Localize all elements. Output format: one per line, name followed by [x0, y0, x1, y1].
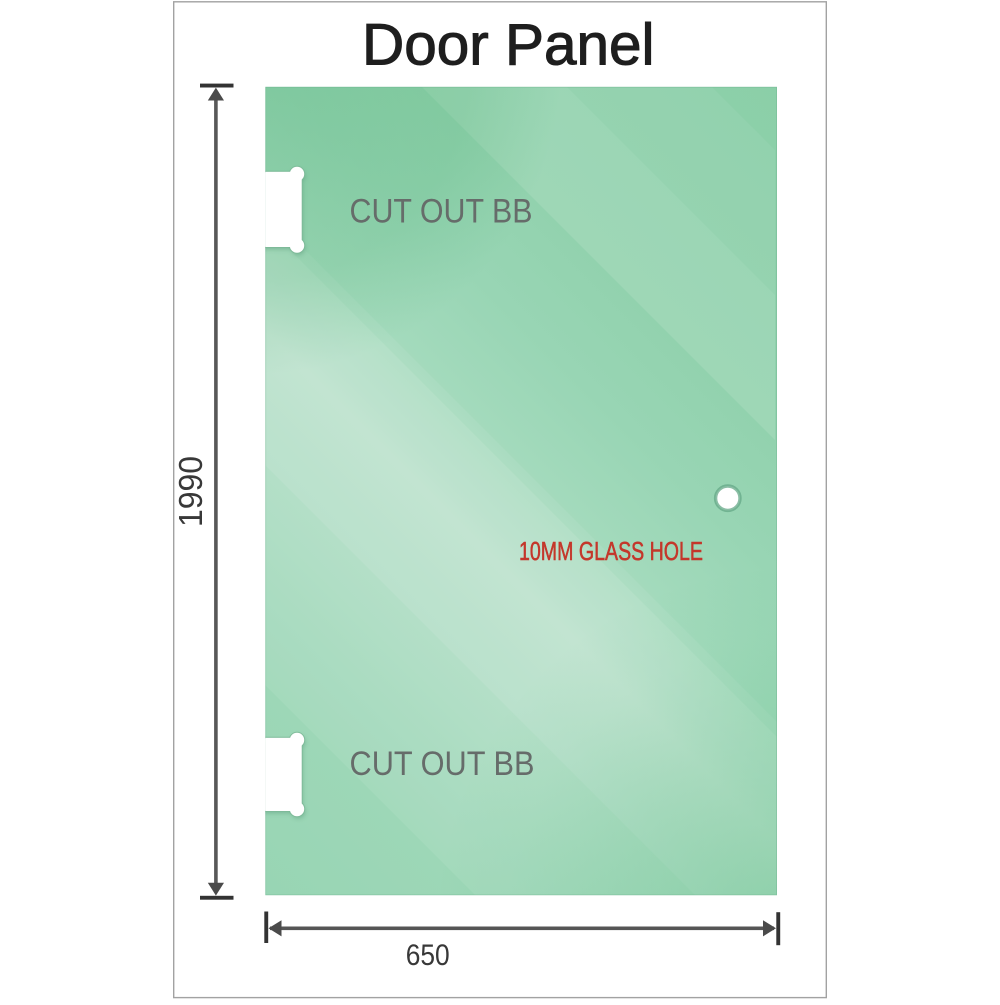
- svg-text:Door Panel: Door Panel: [362, 13, 655, 78]
- svg-text:1990: 1990: [173, 456, 210, 527]
- svg-text:CUT OUT BB: CUT OUT BB: [350, 745, 535, 783]
- svg-text:10MM GLASS HOLE: 10MM GLASS HOLE: [519, 536, 703, 566]
- svg-text:650: 650: [406, 939, 450, 972]
- svg-text:CUT OUT BB: CUT OUT BB: [350, 192, 533, 230]
